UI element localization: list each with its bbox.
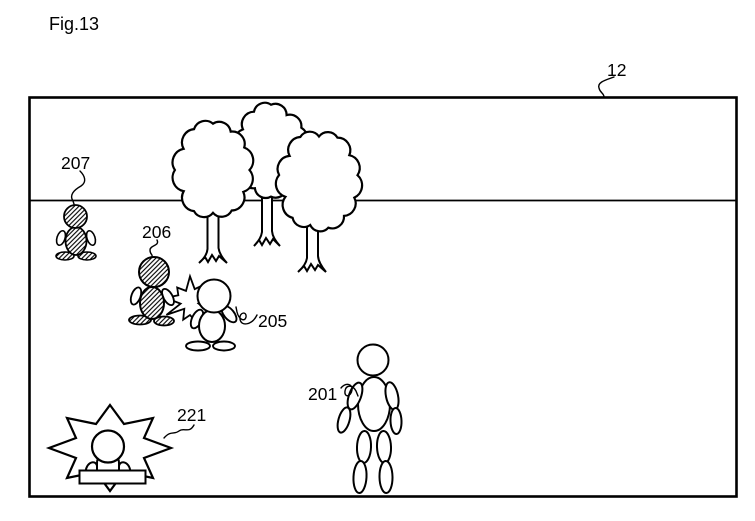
head: [358, 345, 389, 376]
ref-number: 206: [142, 222, 171, 242]
left-foot: [186, 342, 210, 351]
leader-line: [599, 77, 614, 97]
ref-12-label: 12: [599, 60, 627, 97]
emblem-221-badge: [49, 405, 171, 491]
ref-number: 205: [258, 311, 287, 331]
head: [64, 205, 87, 228]
ref-number: 207: [61, 153, 90, 173]
body: [199, 310, 225, 342]
left-thigh: [356, 431, 371, 463]
head: [139, 257, 169, 287]
tree-canopy: [173, 121, 254, 217]
head: [198, 280, 231, 313]
name-plate: [80, 471, 146, 484]
left-shin: [353, 461, 368, 494]
patent-figure-canvas: Fig.13: [0, 0, 755, 521]
figure-caption: Fig.13: [49, 14, 99, 34]
bust-head: [92, 431, 124, 463]
ref-number: 221: [177, 405, 206, 425]
figure-drawing: Fig.13: [0, 0, 755, 521]
right-forearm: [390, 408, 402, 434]
ref-number: 12: [607, 60, 626, 80]
body: [66, 227, 87, 255]
right-thigh: [376, 431, 391, 463]
right-shin: [379, 461, 393, 493]
body: [140, 287, 164, 319]
ref-number: 201: [308, 384, 337, 404]
right-foot: [213, 342, 235, 351]
